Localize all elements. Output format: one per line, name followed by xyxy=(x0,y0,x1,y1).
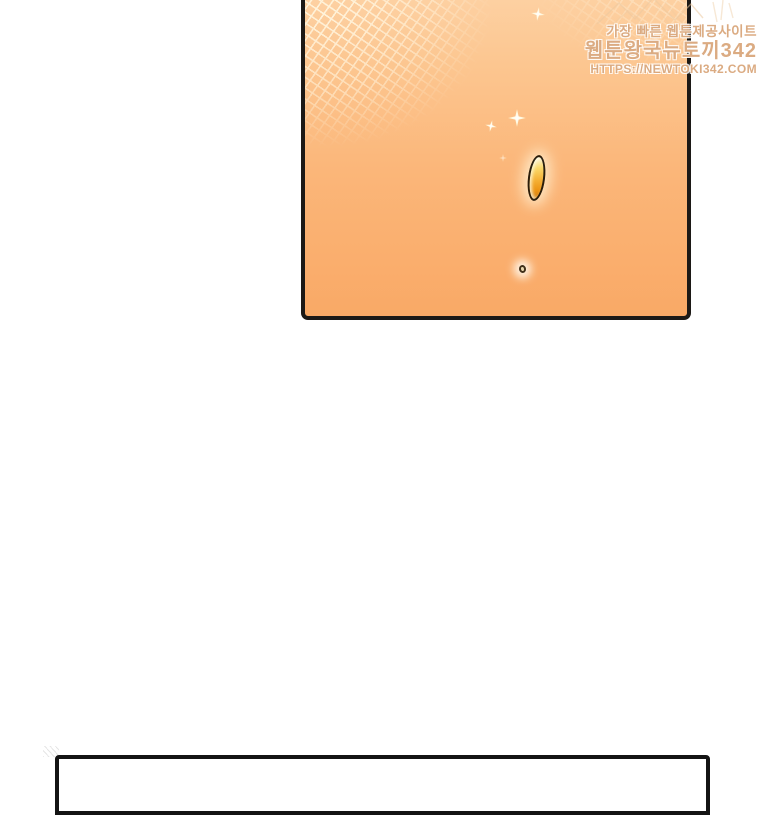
watermark-tagline: 가장 빠른 웹툰제공사이트 xyxy=(585,25,757,40)
newtoki-rabbit-sketch-icon xyxy=(595,0,735,25)
watermark-url: HTTPS://NEWTOKI342.COM xyxy=(585,63,757,76)
comic-panel-bottom xyxy=(55,755,710,815)
watermark-site-name: 웹툰왕국뉴토끼342 xyxy=(585,41,757,63)
crosshatch-texture-top-left xyxy=(301,0,522,203)
tiny-seed xyxy=(518,264,527,273)
site-watermark: 가장 빠른 웹툰제공사이트 웹툰왕국뉴토끼342 HTTPS://NEWTOKI… xyxy=(585,0,757,76)
golden-drop xyxy=(525,154,547,202)
